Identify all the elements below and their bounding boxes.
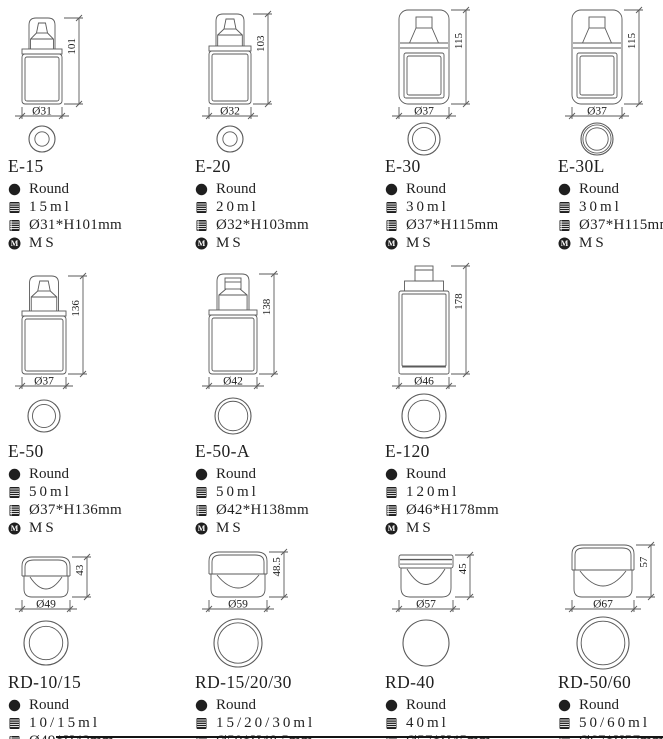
- bottom-rule-divider: [56, 736, 663, 738]
- spec-shape-icon-wrap: [8, 183, 21, 196]
- spec-material-icon-wrap: M: [558, 237, 571, 250]
- spec-shape: Round: [385, 180, 558, 198]
- round-shape-icon: [385, 183, 398, 196]
- spec-shape: Round: [558, 180, 663, 198]
- spec-volume-icon-wrap: [195, 201, 208, 214]
- spec-size-icon-wrap: [385, 504, 398, 517]
- spec-shape-text: Round: [406, 697, 446, 714]
- technical-drawing-svg: 136Ø37: [8, 272, 123, 392]
- diameter-dimension-label: Ø59: [228, 599, 248, 611]
- height-dimension-label: 43: [74, 564, 86, 576]
- product-name: E-20: [195, 156, 385, 177]
- spec-shape: Round: [558, 696, 663, 714]
- spec-size: Ø37*H115mm: [558, 216, 663, 234]
- spec-volume: 50ml: [195, 483, 385, 501]
- spec-size-text: Ø37*H115mm: [406, 217, 498, 234]
- height-dimension-label: 115: [453, 32, 465, 49]
- top-view: [558, 615, 663, 671]
- spec-size: Ø37*H115mm: [385, 216, 558, 234]
- spec-volume: 15ml: [8, 198, 195, 216]
- product-name: RD-40: [385, 672, 558, 693]
- material-icon: M: [8, 522, 21, 535]
- technical-drawing-svg: 138Ø42: [195, 270, 310, 392]
- spec-material: MMS: [8, 234, 195, 252]
- round-shape-icon: [558, 183, 571, 196]
- volume-jar-icon: [8, 486, 21, 499]
- product-card: 57Ø67RD-50/60Round50/60mlØ67*H57mmMMS: [558, 541, 663, 739]
- spec-shape: Round: [195, 180, 385, 198]
- technical-drawing: 138Ø42: [195, 262, 385, 392]
- material-icon-letter: M: [388, 239, 396, 248]
- material-icon: M: [195, 237, 208, 250]
- spec-volume: 50/60ml: [558, 714, 663, 732]
- spec-shape-icon-wrap: [8, 468, 21, 481]
- technical-drawing: 45Ø57: [385, 541, 558, 615]
- top-view: [8, 615, 195, 671]
- top-view: [195, 615, 385, 671]
- product-row-3: 43Ø49RD-10/15Round10/15mlØ49*H43mmMMS48.…: [0, 541, 663, 739]
- spec-shape-icon-wrap: [195, 183, 208, 196]
- product-row-2: 136Ø37E-50Round50mlØ37*H136mmMMS138Ø42E-…: [0, 262, 663, 537]
- volume-jar-icon: [558, 717, 571, 730]
- technical-drawing-svg: 101Ø31: [8, 14, 123, 122]
- height-dimension-label: 138: [261, 298, 273, 315]
- height-dimension-label: 101: [66, 38, 78, 55]
- spec-volume: 15/20/30ml: [195, 714, 385, 732]
- top-view: [385, 122, 558, 155]
- top-view: [385, 392, 558, 440]
- spec-size-icon-wrap: [195, 219, 208, 232]
- material-icon-letter: M: [561, 239, 569, 248]
- top-view: [8, 122, 195, 155]
- size-jar-icon: [8, 219, 21, 232]
- spec-volume-text: 20ml: [216, 199, 259, 216]
- round-shape-icon: [385, 699, 398, 712]
- spec-shape-text: Round: [579, 697, 619, 714]
- spec-shape-icon-wrap: [195, 699, 208, 712]
- spec-shape-text: Round: [579, 181, 619, 198]
- height-dimension-label: 178: [453, 293, 465, 310]
- material-icon-letter: M: [198, 524, 206, 533]
- spec-list: Round20mlØ32*H103mmMMS: [195, 180, 385, 252]
- spec-shape: Round: [8, 696, 195, 714]
- product-name: E-15: [8, 156, 195, 177]
- spec-shape: Round: [8, 465, 195, 483]
- spec-volume-icon-wrap: [558, 201, 571, 214]
- spec-size-text: Ø37*H115mm: [579, 217, 663, 234]
- spec-shape-text: Round: [29, 466, 69, 483]
- spec-size-text: Ø31*H101mm: [29, 217, 122, 234]
- material-icon-letter: M: [388, 524, 396, 533]
- top-view-circle: [8, 618, 123, 668]
- top-view-circle: [8, 123, 123, 155]
- spec-material: MMS: [385, 234, 558, 252]
- spec-material-icon-wrap: M: [8, 237, 21, 250]
- spec-list: Round15mlØ31*H101mmMMS: [8, 180, 195, 252]
- spec-size-icon-wrap: [558, 219, 571, 232]
- diameter-dimension-label: Ø46: [414, 376, 434, 388]
- spec-material-text: MS: [406, 235, 434, 252]
- diameter-dimension-label: Ø32: [220, 106, 240, 118]
- spec-shape: Round: [8, 180, 195, 198]
- product-row-1: 101Ø31E-15Round15mlØ31*H101mmMMS103Ø32E-…: [0, 0, 663, 252]
- technical-drawing: 136Ø37: [8, 262, 195, 392]
- top-view-circle: [195, 123, 310, 155]
- technical-drawing-svg: 57Ø67: [558, 541, 663, 615]
- volume-jar-icon: [385, 201, 398, 214]
- spec-list: Round30mlØ37*H115mmMMS: [558, 180, 663, 252]
- technical-drawing-svg: 115Ø37: [558, 6, 663, 122]
- spec-volume-text: 50ml: [29, 484, 72, 501]
- spec-volume-text: 40ml: [406, 715, 449, 732]
- diameter-dimension-label: Ø57: [416, 599, 436, 611]
- spec-volume-text: 30ml: [579, 199, 622, 216]
- spec-material-text: MS: [216, 235, 244, 252]
- spec-shape: Round: [385, 465, 558, 483]
- round-shape-icon: [8, 183, 21, 196]
- spec-volume: 30ml: [558, 198, 663, 216]
- spec-shape-icon-wrap: [385, 699, 398, 712]
- size-jar-icon: [8, 504, 21, 517]
- top-view: [195, 392, 385, 440]
- spec-volume-text: 30ml: [406, 199, 449, 216]
- top-view-circle: [558, 120, 663, 158]
- spec-material-text: MS: [579, 235, 607, 252]
- round-shape-icon: [385, 468, 398, 481]
- spec-shape-text: Round: [216, 697, 256, 714]
- spec-list: Round50mlØ37*H136mmMMS: [8, 465, 195, 537]
- spec-size: Ø37*H136mm: [8, 501, 195, 519]
- size-jar-icon: [8, 735, 21, 739]
- product-card: 115Ø37E-30LRound30mlØ37*H115mmMMS: [558, 6, 663, 252]
- product-card: 115Ø37E-30Round30mlØ37*H115mmMMS: [385, 6, 558, 252]
- round-shape-icon: [8, 468, 21, 481]
- spec-material-icon-wrap: M: [385, 522, 398, 535]
- product-card: 138Ø42E-50-ARound50mlØ42*H138mmMMS: [195, 262, 385, 537]
- volume-jar-icon: [195, 201, 208, 214]
- spec-size-text: Ø46*H178mm: [406, 502, 499, 519]
- spec-material: MMS: [385, 519, 558, 537]
- top-view-circle: [385, 120, 500, 158]
- spec-list: Round50mlØ42*H138mmMMS: [195, 465, 385, 537]
- top-view-circle: [385, 617, 500, 669]
- diameter-dimension-label: Ø49: [36, 599, 56, 611]
- spec-size-text: Ø37*H136mm: [29, 502, 122, 519]
- material-icon: M: [558, 237, 571, 250]
- height-dimension-label: 57: [638, 556, 650, 568]
- material-icon-letter: M: [11, 239, 19, 248]
- height-dimension-label: 103: [255, 35, 267, 52]
- spec-shape-icon-wrap: [385, 183, 398, 196]
- technical-drawing: 115Ø37: [385, 6, 558, 122]
- size-jar-icon: [195, 504, 208, 517]
- height-dimension-label: 45: [457, 563, 469, 575]
- product-name: RD-15/20/30: [195, 672, 385, 693]
- spec-material-icon-wrap: M: [8, 522, 21, 535]
- size-jar-icon: [385, 504, 398, 517]
- spec-shape: Round: [385, 696, 558, 714]
- technical-drawing: 43Ø49: [8, 541, 195, 615]
- spec-size-text: Ø32*H103mm: [216, 217, 309, 234]
- spec-shape: Round: [195, 465, 385, 483]
- spec-volume-icon-wrap: [195, 717, 208, 730]
- top-view: [8, 392, 195, 440]
- product-name: E-50: [8, 441, 195, 462]
- diameter-dimension-label: Ø31: [32, 106, 52, 118]
- spec-shape-icon-wrap: [195, 468, 208, 481]
- technical-drawing-svg: 48.5Ø59: [195, 548, 310, 615]
- technical-drawing-svg: 103Ø32: [195, 10, 310, 122]
- spec-volume-icon-wrap: [8, 717, 21, 730]
- spec-volume-icon-wrap: [385, 486, 398, 499]
- spec-material: MMS: [558, 234, 663, 252]
- round-shape-icon: [195, 699, 208, 712]
- volume-jar-icon: [8, 717, 21, 730]
- spec-volume: 20ml: [195, 198, 385, 216]
- technical-drawing-svg: 45Ø57: [385, 551, 500, 615]
- diameter-dimension-label: Ø37: [34, 376, 54, 388]
- spec-volume-icon-wrap: [558, 717, 571, 730]
- volume-jar-icon: [195, 717, 208, 730]
- spec-size-icon-wrap: [195, 504, 208, 517]
- product-name: E-30: [385, 156, 558, 177]
- diameter-dimension-label: Ø37: [414, 106, 434, 118]
- spec-volume: 30ml: [385, 198, 558, 216]
- volume-jar-icon: [385, 486, 398, 499]
- volume-jar-icon: [558, 201, 571, 214]
- diameter-dimension-label: Ø67: [593, 599, 613, 611]
- product-card: 45Ø57RD-40Round40mlØ57*H45mmMABS: [385, 541, 558, 739]
- spec-size: Ø31*H101mm: [8, 216, 195, 234]
- spec-shape-text: Round: [216, 466, 256, 483]
- technical-drawing-svg: 43Ø49: [8, 553, 123, 615]
- spec-volume-icon-wrap: [385, 717, 398, 730]
- material-icon: M: [195, 522, 208, 535]
- spec-material-text: MS: [216, 520, 244, 537]
- spec-shape-text: Round: [216, 181, 256, 198]
- technical-drawing-svg: 115Ø37: [385, 6, 500, 122]
- spec-list: Round120mlØ46*H178mmMMS: [385, 465, 558, 537]
- volume-jar-icon: [385, 717, 398, 730]
- spec-material-icon-wrap: M: [195, 237, 208, 250]
- round-shape-icon: [195, 468, 208, 481]
- spec-size-icon-wrap: [8, 504, 21, 517]
- product-name: E-30L: [558, 156, 663, 177]
- spec-shape-text: Round: [406, 466, 446, 483]
- spec-shape-icon-wrap: [558, 183, 571, 196]
- spec-size: Ø32*H103mm: [195, 216, 385, 234]
- spec-volume-text: 50/60ml: [579, 715, 650, 732]
- technical-drawing: 101Ø31: [8, 6, 195, 122]
- spec-volume-text: 15/20/30ml: [216, 715, 315, 732]
- spec-material-text: MS: [29, 235, 57, 252]
- product-card: 103Ø32E-20Round20mlØ32*H103mmMMS: [195, 6, 385, 252]
- spec-volume: 40ml: [385, 714, 558, 732]
- spec-material-text: MS: [29, 520, 57, 537]
- spec-shape-icon-wrap: [385, 468, 398, 481]
- spec-list: Round10/15mlØ49*H43mmMMS: [8, 696, 195, 739]
- height-dimension-label: 115: [626, 32, 638, 49]
- spec-volume-text: 120ml: [406, 484, 459, 501]
- round-shape-icon: [195, 183, 208, 196]
- top-view-circle: [558, 614, 663, 672]
- technical-drawing: 57Ø67: [558, 541, 663, 615]
- spec-material-text: MS: [406, 520, 434, 537]
- spec-volume: 50ml: [8, 483, 195, 501]
- volume-jar-icon: [195, 486, 208, 499]
- material-icon: M: [8, 237, 21, 250]
- height-dimension-label: 48.5: [271, 557, 283, 577]
- diameter-dimension-label: Ø42: [223, 376, 243, 388]
- top-view: [195, 122, 385, 155]
- top-view: [385, 615, 558, 671]
- spec-material: MMS: [195, 519, 385, 537]
- spec-size-icon-wrap: [8, 735, 21, 739]
- spec-volume-text: 50ml: [216, 484, 259, 501]
- product-name: RD-50/60: [558, 672, 663, 693]
- top-view-circle: [8, 397, 123, 435]
- material-icon-letter: M: [198, 239, 206, 248]
- top-view-circle: [385, 391, 500, 441]
- spec-size-icon-wrap: [8, 219, 21, 232]
- round-shape-icon: [558, 699, 571, 712]
- top-view: [558, 122, 663, 155]
- spec-list: Round30mlØ37*H115mmMMS: [385, 180, 558, 252]
- spec-volume-text: 10/15ml: [29, 715, 100, 732]
- spec-size: Ø46*H178mm: [385, 501, 558, 519]
- spec-volume-icon-wrap: [8, 486, 21, 499]
- top-view-circle: [195, 616, 310, 670]
- product-card: 136Ø37E-50Round50mlØ37*H136mmMMS: [8, 262, 195, 537]
- spec-material: MMS: [8, 519, 195, 537]
- technical-drawing: 103Ø32: [195, 6, 385, 122]
- size-jar-icon: [195, 219, 208, 232]
- volume-jar-icon: [8, 201, 21, 214]
- spec-material: MMS: [195, 234, 385, 252]
- spec-volume-text: 15ml: [29, 199, 72, 216]
- spec-size: Ø42*H138mm: [195, 501, 385, 519]
- product-name: E-120: [385, 441, 558, 462]
- spec-volume-icon-wrap: [195, 486, 208, 499]
- product-card: 178Ø46E-120Round120mlØ46*H178mmMMS: [385, 262, 558, 537]
- spec-shape: Round: [195, 696, 385, 714]
- product-card: 43Ø49RD-10/15Round10/15mlØ49*H43mmMMS: [8, 541, 195, 739]
- spec-list: Round40mlØ57*H45mmMABS: [385, 696, 558, 739]
- size-jar-icon: [385, 219, 398, 232]
- spec-material-icon-wrap: M: [385, 237, 398, 250]
- spec-volume: 120ml: [385, 483, 558, 501]
- spec-material-icon-wrap: M: [195, 522, 208, 535]
- spec-volume-icon-wrap: [385, 201, 398, 214]
- top-view-circle: [195, 395, 310, 437]
- spec-size-icon-wrap: [385, 219, 398, 232]
- spec-volume-icon-wrap: [8, 201, 21, 214]
- spec-shape-text: Round: [29, 181, 69, 198]
- material-icon: M: [385, 522, 398, 535]
- product-card: 101Ø31E-15Round15mlØ31*H101mmMMS: [8, 6, 195, 252]
- material-icon: M: [385, 237, 398, 250]
- spec-size-text: Ø42*H138mm: [216, 502, 309, 519]
- material-icon-letter: M: [11, 524, 19, 533]
- technical-drawing: 115Ø37: [558, 6, 663, 122]
- spec-shape-text: Round: [29, 697, 69, 714]
- technical-drawing: 48.5Ø59: [195, 541, 385, 615]
- product-name: RD-10/15: [8, 672, 195, 693]
- catalog-page: 101Ø31E-15Round15mlØ31*H101mmMMS103Ø32E-…: [0, 0, 663, 739]
- technical-drawing: 178Ø46: [385, 262, 558, 392]
- round-shape-icon: [8, 699, 21, 712]
- product-name: E-50-A: [195, 441, 385, 462]
- spec-shape-text: Round: [406, 181, 446, 198]
- spec-volume: 10/15ml: [8, 714, 195, 732]
- height-dimension-label: 136: [70, 300, 82, 317]
- product-card: 48.5Ø59RD-15/20/30Round15/20/30mlØ59*H48…: [195, 541, 385, 739]
- spec-shape-icon-wrap: [558, 699, 571, 712]
- size-jar-icon: [558, 219, 571, 232]
- spec-shape-icon-wrap: [8, 699, 21, 712]
- spec-list: Round15/20/30mlØ59*H48.5mmMMS: [195, 696, 385, 739]
- diameter-dimension-label: Ø37: [587, 106, 607, 118]
- spec-list: Round50/60mlØ67*H57mmMMS: [558, 696, 663, 739]
- technical-drawing-svg: 178Ø46: [385, 262, 500, 392]
